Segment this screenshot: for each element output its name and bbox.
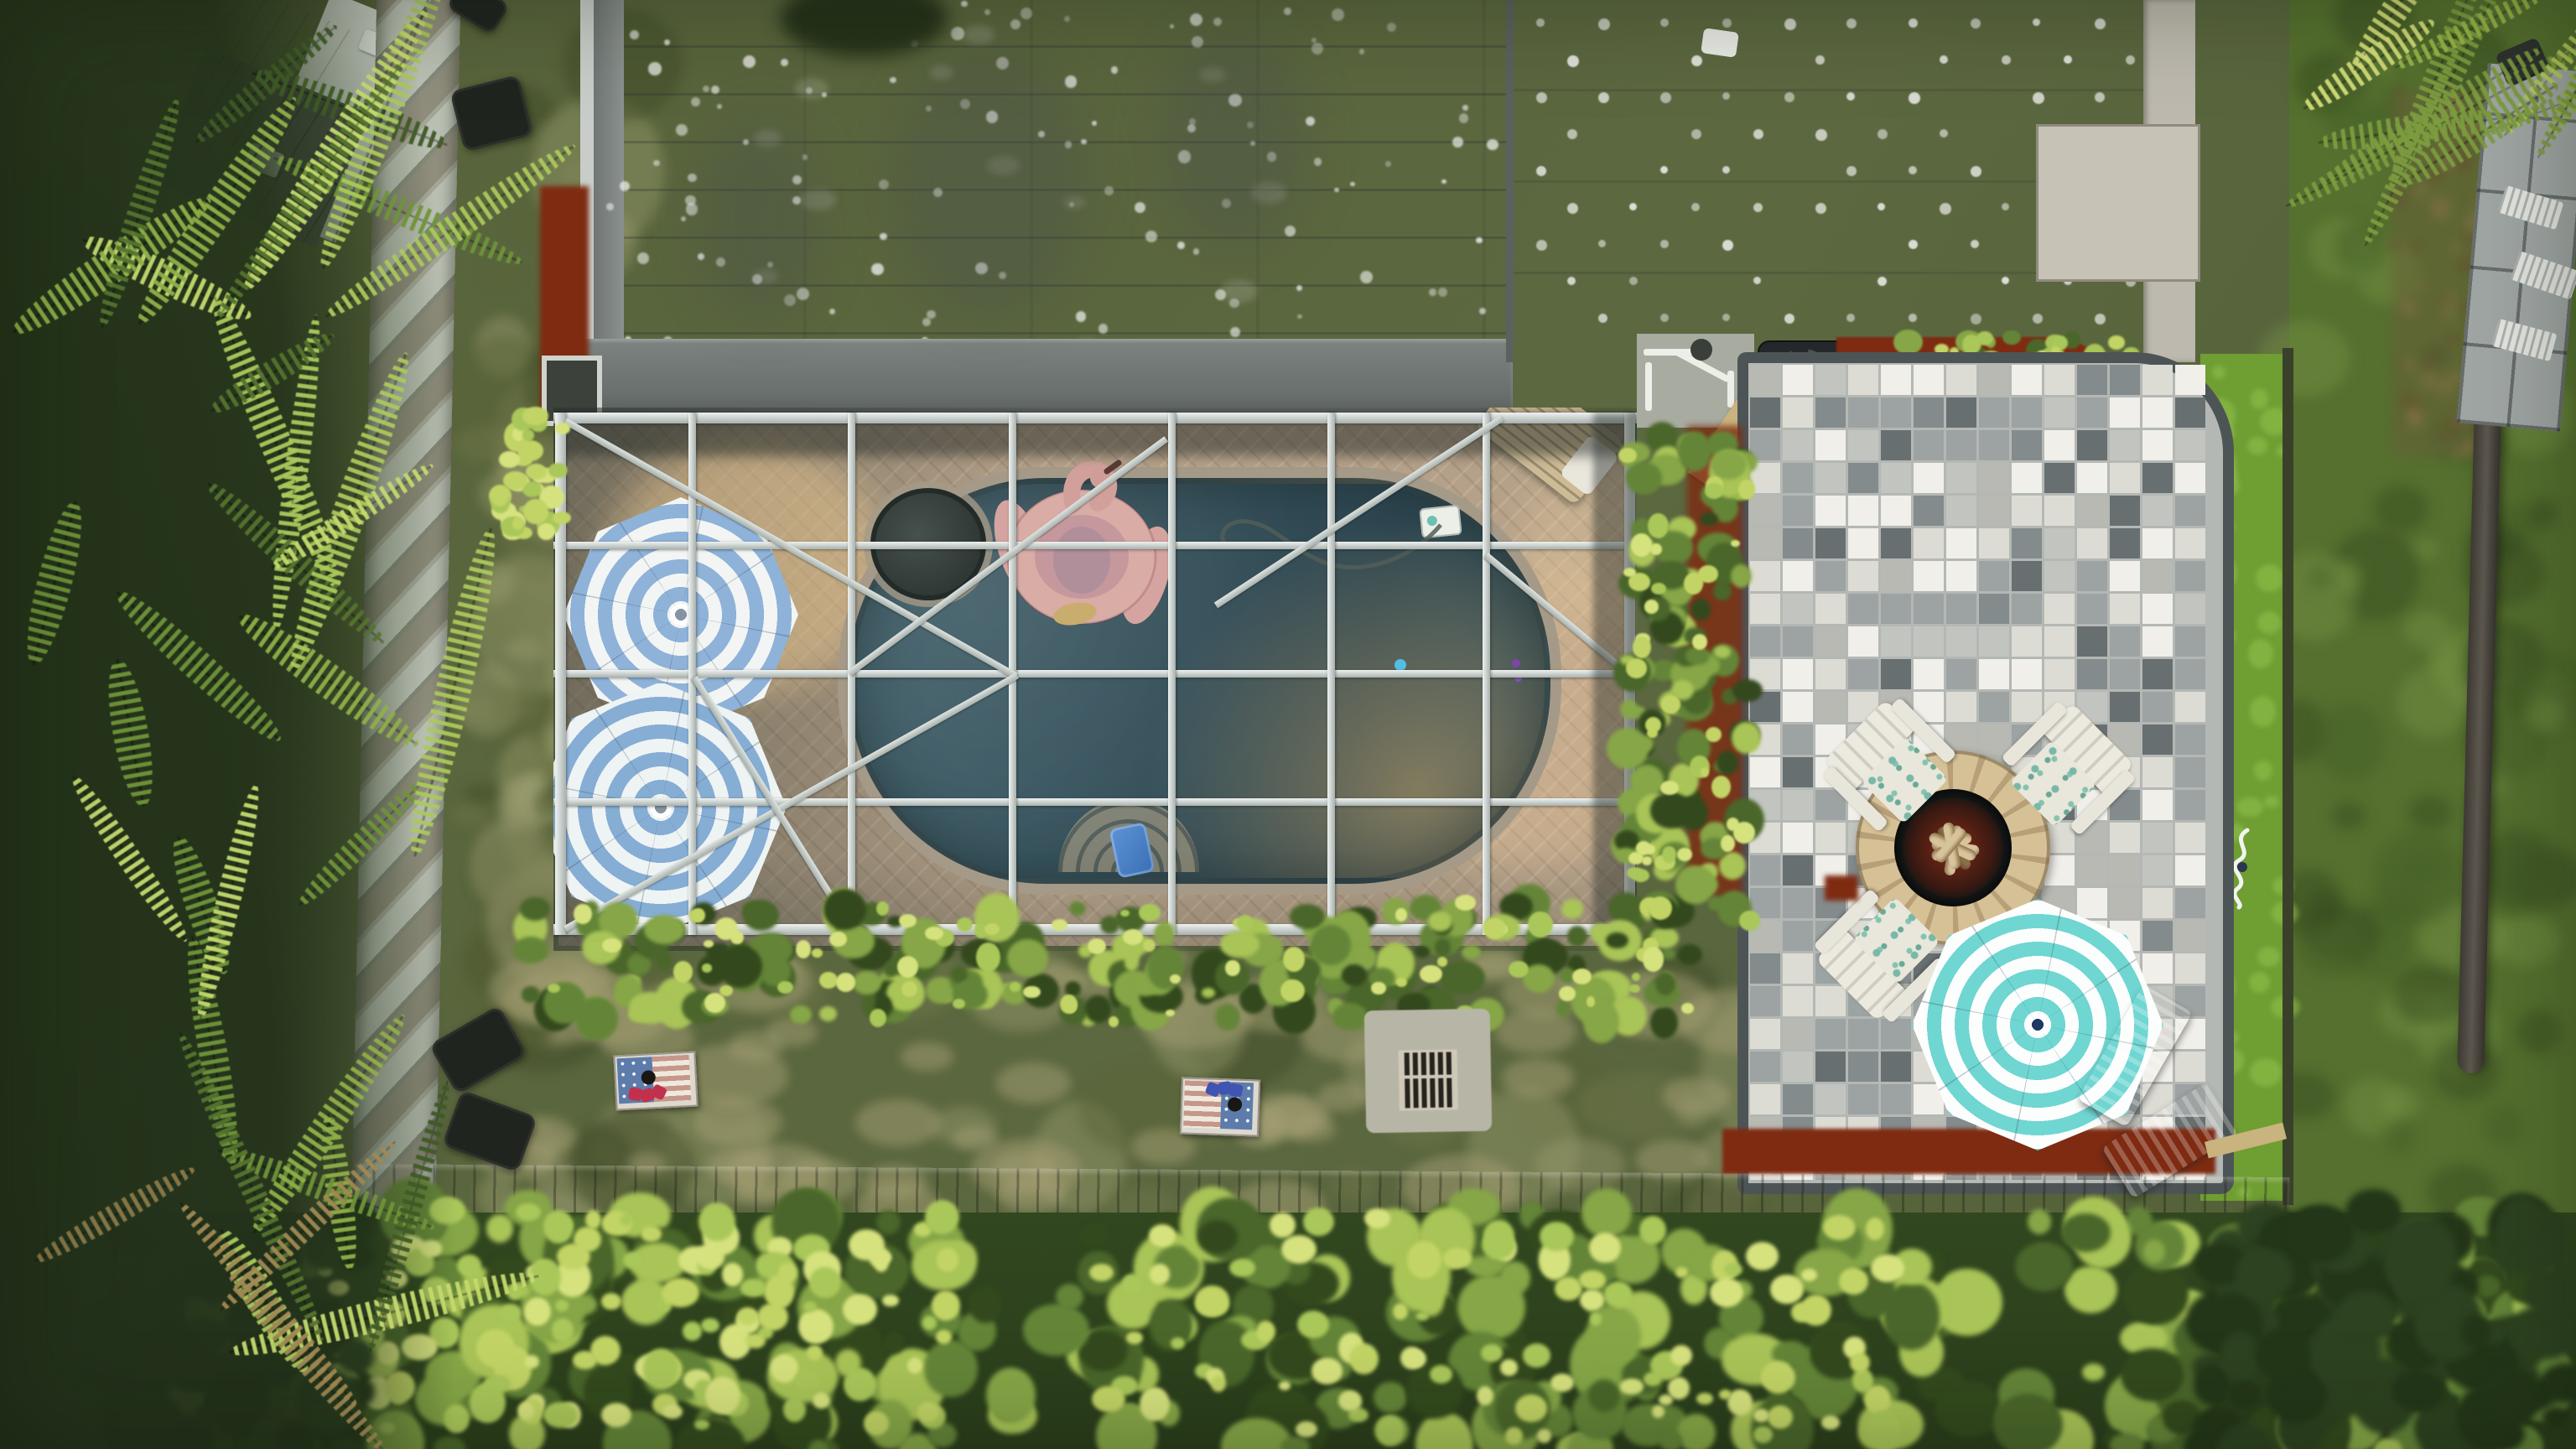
foliage-blob	[853, 971, 881, 995]
yard-drain	[1364, 1009, 1493, 1134]
foliage-blob	[2401, 299, 2416, 316]
foliage-blob	[2143, 1239, 2165, 1264]
roof-speckle	[630, 30, 639, 39]
roof-speckle	[1350, 182, 1355, 187]
foliage-blob	[1731, 564, 1752, 588]
paver-tile	[2142, 659, 2173, 689]
paver-tile	[1848, 528, 1878, 558]
paver-tile	[2110, 528, 2140, 558]
roof-speckle	[890, 77, 896, 84]
foliage-blob	[1481, 1344, 1503, 1362]
paver-tile	[2044, 430, 2075, 460]
foliage-blob	[2108, 335, 2125, 349]
paver-tile	[2175, 1052, 2205, 1082]
roof-dot	[1598, 314, 1607, 323]
paver-tile	[2012, 397, 2042, 428]
foliage-blob	[1670, 1345, 1692, 1367]
roof-dot	[2095, 314, 2106, 325]
foliage-blob	[844, 1368, 876, 1401]
pvc-pipe	[1645, 362, 1652, 411]
foliage-blob	[2236, 797, 2263, 817]
roof-dot	[1536, 166, 1546, 176]
roof-dot	[1971, 166, 1981, 177]
paver-tile	[2142, 397, 2173, 428]
foliage-blob	[1620, 1379, 1644, 1395]
paver-tile	[1881, 594, 1911, 624]
foliage-blob	[2397, 418, 2405, 426]
paver-tile	[2142, 790, 2173, 820]
foliage-blob	[2528, 499, 2558, 528]
paver-tile	[1979, 724, 2009, 755]
foliage-blob	[2525, 699, 2564, 730]
foliage-blob	[1753, 1426, 1773, 1444]
paver-tile	[2110, 594, 2140, 624]
foliage-blob	[812, 948, 823, 958]
roof-dot	[1909, 18, 1918, 28]
foliage-blob	[1711, 776, 1732, 798]
foliage-blob	[1677, 848, 1692, 861]
foliage-blob	[520, 897, 551, 921]
paver-tile	[1881, 1052, 1911, 1082]
foliage-blob	[548, 463, 568, 478]
paver-tile	[1783, 757, 1813, 787]
paver-tile	[2142, 463, 2173, 493]
dry-grass-patch	[855, 1099, 941, 1146]
roof-dot	[1598, 92, 1609, 103]
roof-speckle	[691, 97, 700, 106]
grass-patch	[483, 266, 519, 284]
foliage-blob	[1639, 1216, 1666, 1244]
foliage-blob	[1505, 1427, 1522, 1444]
paver-tile	[2142, 496, 2173, 526]
foliage-blob	[1256, 1321, 1275, 1343]
roof-speckle	[1111, 66, 1119, 74]
foliage-blob	[662, 1405, 683, 1419]
paver-tile	[1783, 626, 1813, 657]
paver-tile	[1881, 561, 1911, 591]
foliage-blob	[1632, 973, 1640, 982]
palm-fronds-top-right	[2130, 0, 2576, 277]
paver-tile	[1815, 986, 1846, 1016]
roof-speckle	[879, 179, 889, 190]
paver-tile	[2142, 365, 2173, 395]
foliage-blob	[1550, 1374, 1574, 1392]
paver-tile	[1783, 496, 1813, 526]
roof-dot	[1722, 240, 1733, 251]
paver-tile	[1815, 1052, 1846, 1082]
foliage-blob	[1662, 948, 1675, 960]
foliage-blob	[2250, 696, 2277, 727]
foliage-blob	[1700, 512, 1718, 526]
paver-tile	[1848, 1052, 1878, 1082]
paver-tile	[2077, 561, 2107, 591]
foliage-blob	[1652, 1405, 1664, 1418]
foliage-blob	[897, 956, 917, 978]
foliage-blob	[1150, 1264, 1171, 1285]
paver-tile	[2110, 561, 2140, 591]
roof-speckle	[1098, 324, 1109, 334]
aerial-backyard-photo	[0, 0, 2576, 1449]
foliage-blob	[1281, 1235, 1317, 1264]
foliage-blob	[757, 1303, 788, 1331]
paver-tile	[2175, 496, 2205, 526]
paver-tile	[1815, 1084, 1846, 1114]
paver-tile	[2175, 397, 2205, 428]
paver-tile	[1783, 365, 1813, 395]
foliage-blob	[1588, 1379, 1620, 1413]
paver-tile	[2012, 659, 2042, 689]
roof-dot	[1598, 240, 1606, 247]
screen-enclosure	[553, 408, 1637, 951]
paver-tile	[1979, 528, 2009, 558]
dry-grass-patch	[901, 1042, 953, 1071]
enclosure-beam	[1168, 413, 1176, 935]
roof-speckle	[1285, 226, 1296, 236]
foliage-blob	[2381, 1087, 2421, 1121]
roof-speckle	[743, 55, 756, 68]
roof-dot	[2002, 203, 2009, 210]
roof-speckle	[681, 216, 686, 221]
paver-tile	[1815, 626, 1846, 657]
roof-speckle	[984, 9, 991, 16]
paver-tile	[1979, 496, 2009, 526]
paver-tile	[2175, 365, 2205, 395]
foliage-blob	[1644, 844, 1655, 854]
paver-tile	[2077, 659, 2107, 689]
foliage-blob	[1628, 852, 1644, 865]
roof-speckle	[1311, 43, 1323, 55]
foliage-blob	[2250, 1058, 2282, 1087]
paver-tile	[2012, 626, 2042, 657]
foliage-blob	[1166, 1010, 1176, 1017]
foliage-blob	[1120, 910, 1130, 917]
paver-tile	[1881, 496, 1911, 526]
paver-tile	[1783, 790, 1813, 820]
foliage-blob	[1435, 938, 1450, 957]
foliage-blob	[1791, 1302, 1812, 1322]
foliage-blob	[1677, 944, 1702, 965]
paver-tile	[2044, 626, 2075, 657]
roof-speckle	[1479, 308, 1486, 314]
paver-tile	[2175, 888, 2205, 918]
roof-dot	[2002, 55, 2011, 65]
paver-tile	[2175, 659, 2205, 689]
neighbor-lounger	[2491, 319, 2557, 361]
foliage-blob	[1731, 540, 1740, 547]
palm-frond	[29, 1160, 201, 1272]
paver-tile	[2044, 397, 2075, 428]
roof-dot	[1846, 314, 1855, 322]
paver-tile	[2110, 659, 2140, 689]
foliage-blob	[601, 1403, 631, 1427]
enclosure-hedge	[530, 904, 1704, 1021]
foliage-blob	[1706, 727, 1722, 743]
foliage-blob	[957, 917, 973, 931]
roof-speckle	[1487, 139, 1498, 150]
foliage-blob	[513, 937, 548, 963]
roof-speckle	[653, 160, 660, 167]
foliage-blob	[1270, 1213, 1296, 1238]
paver-tile	[2110, 692, 2140, 722]
paver-tile	[1750, 1019, 1780, 1049]
paver-tile	[1881, 397, 1911, 428]
roof-speckle	[620, 181, 630, 191]
paver-tile	[2077, 397, 2107, 428]
paver-tile	[1783, 659, 1813, 689]
foliage-blob	[1701, 767, 1710, 777]
foliage-blob	[2423, 356, 2435, 370]
paver-tile	[1881, 1084, 1911, 1114]
foliage-blob	[880, 1253, 892, 1262]
foliage-blob	[2289, 1205, 2354, 1263]
foliage-blob	[1556, 1000, 1571, 1016]
roof-speckle	[688, 174, 697, 183]
enclosure-beam	[553, 542, 1637, 549]
foliage-blob	[2002, 330, 2021, 345]
paver-tile	[1881, 430, 1911, 460]
roof-speckle	[648, 62, 661, 75]
foliage-blob	[523, 499, 548, 524]
paver-tile	[2044, 365, 2075, 395]
foliage-blob	[1871, 1254, 1904, 1283]
bush-row	[1625, 429, 1751, 921]
foliage-blob	[843, 1294, 877, 1325]
foliage-blob	[693, 908, 705, 922]
foliage-blob	[2445, 332, 2459, 345]
paver-tile	[1914, 594, 1944, 624]
roof-dot	[1846, 166, 1857, 176]
foliage-blob	[907, 1358, 922, 1374]
roof-speckle	[637, 252, 649, 264]
foliage-blob	[1753, 1409, 1769, 1422]
roof-speckle	[1170, 24, 1174, 29]
paver-tile	[1783, 397, 1813, 428]
roof-speckle	[1387, 23, 1396, 32]
foliage-blob	[1311, 1358, 1343, 1384]
paver-tile	[1848, 626, 1878, 657]
paver-tile	[2110, 463, 2140, 493]
paver-tile	[1979, 659, 2009, 689]
dry-grass-patch	[996, 1062, 1071, 1104]
foliage-blob	[1719, 1389, 1732, 1400]
foliage-blob	[2256, 564, 2283, 592]
foliage-blob	[552, 1318, 574, 1343]
paver-tile	[2175, 823, 2205, 853]
foliage-blob	[2121, 1348, 2184, 1402]
foliage-blob	[1537, 1429, 1551, 1442]
foliage-blob	[1650, 543, 1662, 555]
roof-speckle	[1230, 327, 1240, 337]
roof-dot	[2033, 18, 2040, 26]
roof-speckle	[685, 195, 695, 205]
paver-tile	[1750, 561, 1780, 591]
paver-tile	[2110, 888, 2140, 918]
paver-tile	[2044, 496, 2075, 526]
foliage-blob	[1215, 1004, 1240, 1031]
foliage-blob	[1342, 964, 1367, 985]
foliage-blob	[2392, 1369, 2444, 1411]
foliage-blob	[2517, 1010, 2561, 1054]
roof-speckle	[961, 1, 968, 8]
foliage-blob	[1443, 1248, 1472, 1268]
foliage-blob	[1866, 1218, 1884, 1239]
paver-tile	[1848, 594, 1878, 624]
foliage-blob	[2257, 611, 2281, 634]
foliage-blob	[601, 1293, 621, 1310]
foliage-blob	[870, 1009, 886, 1027]
foliage-blob	[1483, 918, 1506, 939]
paver-tile	[2142, 561, 2173, 591]
foliage-blob	[876, 901, 889, 916]
foliage-blob	[2386, 1119, 2415, 1154]
paver-tile	[1750, 626, 1780, 657]
paver-tile	[2044, 463, 2075, 493]
foliage-blob	[1415, 946, 1431, 958]
paver-tile	[2142, 921, 2173, 951]
roof-dot	[2033, 92, 2044, 104]
paver-tile	[2175, 463, 2205, 493]
foliage-blob	[1732, 722, 1761, 754]
foliage-blob	[1220, 931, 1259, 958]
foliage-blob	[1483, 1220, 1514, 1251]
foliage-blob	[2337, 1291, 2397, 1341]
paver-tile	[1815, 430, 1846, 460]
dry-grass-patch	[1317, 1083, 1369, 1111]
foliage-blob	[2316, 702, 2386, 782]
foliage-blob	[2247, 437, 2267, 454]
roof-dot	[1784, 92, 1794, 102]
roof-dot	[2064, 55, 2072, 64]
roof-dot	[1567, 203, 1578, 214]
foliage-blob	[1733, 822, 1755, 844]
foliage-blob	[702, 963, 712, 972]
foliage-blob	[1675, 865, 1714, 904]
foliage-blob	[1123, 929, 1143, 945]
foliage-blob	[2421, 372, 2438, 389]
foliage-blob	[1607, 728, 1649, 769]
foliage-blob	[1023, 986, 1040, 999]
foliage-blob	[1642, 856, 1652, 865]
foliage-blob	[1721, 835, 1736, 852]
pool-toy	[1512, 659, 1520, 667]
foliage-blob	[823, 889, 866, 930]
roof-dot	[1815, 129, 1827, 141]
foliage-blob	[1500, 1359, 1517, 1376]
foliage-blob	[798, 1309, 834, 1344]
roof-weather-stain	[696, 117, 822, 319]
roof-speckle	[606, 203, 614, 210]
paver-tile	[1783, 1084, 1813, 1114]
foliage-blob	[745, 1333, 766, 1348]
roof-dot	[1753, 203, 1763, 212]
roof-speckle	[1145, 231, 1157, 242]
paver-tile	[1783, 986, 1813, 1016]
foliage-blob	[1555, 1277, 1581, 1301]
roof-smudge	[1220, 280, 1258, 303]
paver-tile	[2175, 692, 2205, 722]
paver-tile	[1979, 561, 2009, 591]
paver-tile	[2044, 594, 2075, 624]
paver-tile	[1783, 430, 1813, 460]
roof-speckle	[1332, 8, 1344, 21]
foliage-blob	[2374, 486, 2428, 532]
roof-dot	[1971, 240, 1979, 248]
foliage-blob	[1122, 1274, 1141, 1294]
roof-dot	[1629, 277, 1638, 285]
foliage-blob	[2309, 567, 2334, 591]
paver-tile	[2175, 430, 2205, 460]
roof-speckle	[1010, 19, 1021, 30]
roof-dot	[1660, 240, 1669, 248]
foliage-blob	[629, 992, 673, 1024]
paver-tile	[1750, 986, 1780, 1016]
foliage-blob	[1126, 1332, 1143, 1344]
roof-dot	[1971, 18, 1981, 29]
foliage-blob	[819, 1006, 837, 1022]
palm-frond	[229, 602, 428, 760]
paver-tile	[1946, 463, 1976, 493]
umbrella-hub	[2025, 1012, 2050, 1037]
foliage-blob	[2249, 972, 2270, 993]
foliage-blob	[1283, 947, 1305, 972]
paver-tile	[1783, 1019, 1813, 1049]
roof-dot	[1629, 203, 1637, 210]
foliage-blob	[1761, 1361, 1795, 1394]
roof-dot	[1877, 129, 1888, 139]
paver-tile	[1783, 855, 1813, 885]
paver-tile	[1848, 397, 1878, 428]
paver-tile	[2142, 528, 2173, 558]
roof-speckle	[951, 27, 964, 40]
foliage-blob	[1711, 449, 1747, 480]
paver-tile	[1946, 496, 1976, 526]
roof-dot	[1784, 18, 1796, 30]
foliage-blob	[836, 973, 855, 992]
foliage-blob	[512, 517, 523, 530]
paver-tile	[1946, 659, 1976, 689]
foliage-blob	[819, 972, 838, 989]
foliage-blob	[524, 1297, 551, 1326]
paver-tile	[1750, 1084, 1780, 1114]
paver-tile	[1848, 496, 1878, 526]
foliage-blob	[1626, 658, 1647, 678]
foliage-blob	[1396, 978, 1406, 987]
foliage-blob	[2248, 639, 2273, 667]
foliage-blob	[1587, 996, 1596, 1006]
foliage-blob	[1661, 695, 1680, 713]
foliage-blob	[2444, 306, 2454, 319]
roof-dot	[1971, 314, 1981, 325]
roof-speckle	[1441, 179, 1446, 184]
foliage-blob	[1290, 904, 1325, 929]
paver-tile	[2077, 365, 2107, 395]
paver-tile	[1848, 365, 1878, 395]
paver-tile	[1914, 430, 1944, 460]
paver-tile	[2012, 692, 2042, 722]
pool-toy	[1394, 659, 1406, 671]
roof-dot	[1940, 129, 1948, 138]
paver-tile	[2142, 430, 2173, 460]
roof-dot	[1909, 92, 1920, 104]
foliage-blob	[526, 464, 547, 480]
foliage-blob	[1768, 1405, 1793, 1429]
dry-grass-patch	[953, 1126, 998, 1151]
paver-tile	[1783, 724, 1813, 755]
paver-tile	[2142, 626, 2173, 657]
foliage-blob	[2542, 1407, 2570, 1427]
paver-tile	[2175, 561, 2205, 591]
foliage-blob	[1195, 1285, 1230, 1317]
